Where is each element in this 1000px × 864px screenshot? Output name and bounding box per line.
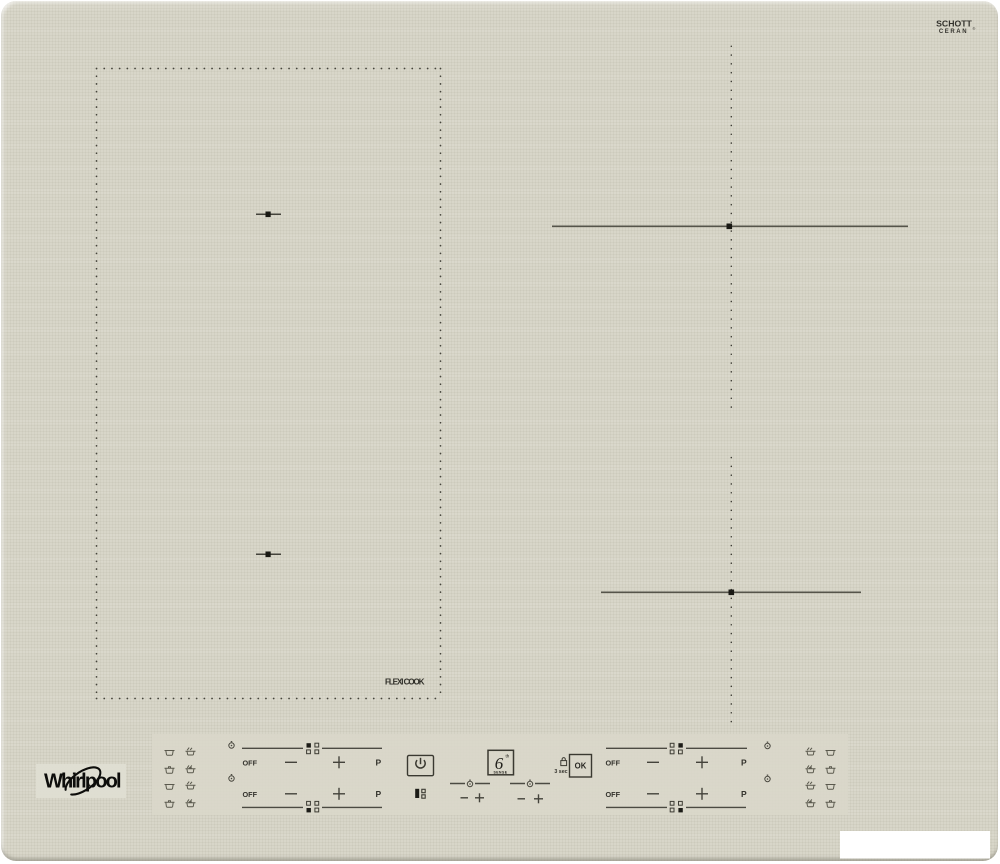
svg-text:3 sec: 3 sec [554,769,567,775]
svg-text:®: ® [973,27,976,31]
svg-text:th: th [506,754,510,759]
svg-text:OFF: OFF [606,790,621,799]
svg-text:P: P [376,757,382,767]
svg-text:SCHOTT: SCHOTT [936,18,972,28]
svg-text:OFF: OFF [243,758,258,767]
svg-text:FLEXI COOK: FLEXI COOK [385,678,425,687]
svg-text:P: P [741,757,747,767]
svg-text:P: P [741,789,747,799]
svg-text:OFF: OFF [243,790,258,799]
svg-text:OFF: OFF [606,758,621,767]
svg-text:OK: OK [575,761,587,770]
svg-text:Whirlpool: Whirlpool [44,771,121,793]
svg-text:CERAN: CERAN [939,29,968,35]
svg-text:SENSE: SENSE [494,770,508,774]
svg-text:P: P [376,789,382,799]
